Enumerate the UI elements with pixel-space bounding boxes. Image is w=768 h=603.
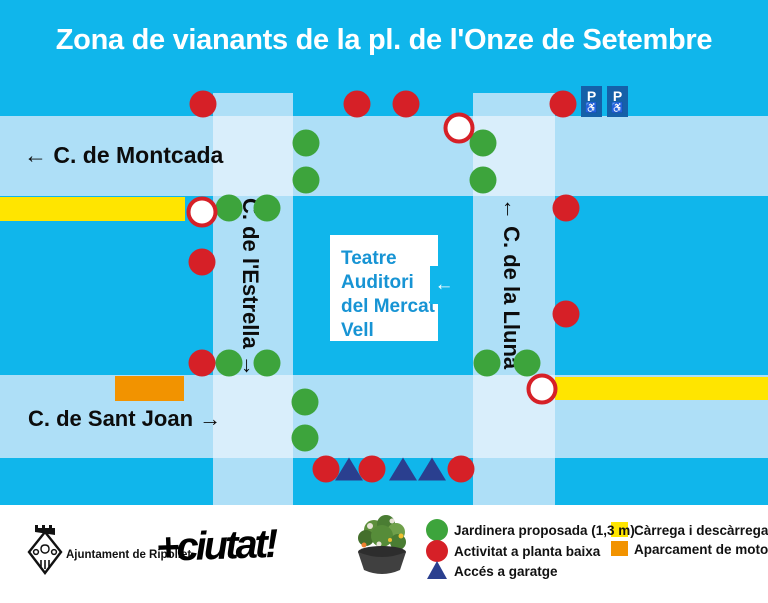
legend-red-circle-icon xyxy=(426,540,448,562)
legend-orange-swatch-icon xyxy=(611,541,628,556)
planter-marker xyxy=(470,130,497,157)
street-label-sant-joan: C. de Sant Joan → xyxy=(28,406,221,432)
ripollet-coat-of-arms xyxy=(26,520,64,580)
theatre-name-line: Auditori xyxy=(341,271,438,295)
wheelchair-icon: ♿ xyxy=(611,104,623,114)
accessible-parking-sign: P ♿ xyxy=(607,86,628,117)
legend-green-circle-icon xyxy=(426,519,448,541)
ground-floor-activity-marker xyxy=(393,91,420,118)
ground-floor-activity-marker xyxy=(190,91,217,118)
planter-marker xyxy=(216,195,243,222)
moto-parking-zone xyxy=(115,376,184,401)
street-label-montcada: ← C. de Montcada xyxy=(24,142,223,169)
loading-zone-left xyxy=(0,197,185,221)
theatre-building: Teatre Auditori del Mercat Vell xyxy=(330,235,438,341)
legend-label-jardinera: Jardinera proposada (1,3 m) xyxy=(454,523,635,538)
planter-marker xyxy=(470,167,497,194)
wheelchair-icon: ♿ xyxy=(585,104,597,114)
open-circle-marker xyxy=(444,113,475,144)
ground-floor-activity-marker xyxy=(189,249,216,276)
ground-floor-activity-marker xyxy=(553,301,580,328)
planter-marker xyxy=(292,389,319,416)
ground-floor-activity-marker xyxy=(344,91,371,118)
planter-marker xyxy=(254,350,281,377)
parking-p-letter: P xyxy=(587,89,596,103)
legend-label-garatge: Accés a garatge xyxy=(454,564,558,579)
planter-photo xyxy=(352,512,414,578)
garage-access-marker xyxy=(389,458,417,481)
accessible-parking-sign: P ♿ xyxy=(581,86,602,117)
ciutat-logo: +ciutat! xyxy=(155,522,276,571)
theatre-entrance-arrow-icon: ← xyxy=(430,266,458,304)
parking-p-letter: P xyxy=(613,89,622,103)
loading-zone-right xyxy=(555,377,768,400)
garage-access-marker xyxy=(418,458,446,481)
page-title: Zona de vianants de la pl. de l'Onze de … xyxy=(0,24,768,57)
intersection-estrella-sant-joan xyxy=(213,375,293,458)
ground-floor-activity-marker xyxy=(553,195,580,222)
street-label-estrella: C. de l'Estrella → xyxy=(237,198,263,377)
planter-marker xyxy=(292,425,319,452)
planter-marker xyxy=(293,130,320,157)
theatre-name-line: Teatre xyxy=(341,247,438,271)
planter-marker xyxy=(254,195,281,222)
pedestrian-zone-map: Zona de vianants de la pl. de l'Onze de … xyxy=(0,0,768,505)
legend-garage-triangle-icon xyxy=(427,561,447,579)
ground-floor-activity-marker xyxy=(189,350,216,377)
open-circle-marker xyxy=(187,197,218,228)
theatre-name-line: Vell xyxy=(341,319,438,343)
planter-marker xyxy=(293,167,320,194)
open-circle-marker xyxy=(527,374,558,405)
planter-marker xyxy=(514,350,541,377)
ground-floor-activity-marker xyxy=(550,91,577,118)
legend-label-carrega: Càrrega i descàrrega xyxy=(634,523,768,538)
theatre-name-line: del Mercat xyxy=(341,295,438,319)
planter-marker xyxy=(216,350,243,377)
legend-label-motos: Aparcament de motos xyxy=(634,542,768,557)
ground-floor-activity-marker xyxy=(448,456,475,483)
garage-access-marker xyxy=(335,458,363,481)
street-label-lluna: ← C. de la Lluna xyxy=(498,198,524,369)
planter-marker xyxy=(474,350,501,377)
legend-label-activitat: Activitat a planta baixa xyxy=(454,544,600,559)
intersection-estrella-montcada xyxy=(213,116,293,196)
